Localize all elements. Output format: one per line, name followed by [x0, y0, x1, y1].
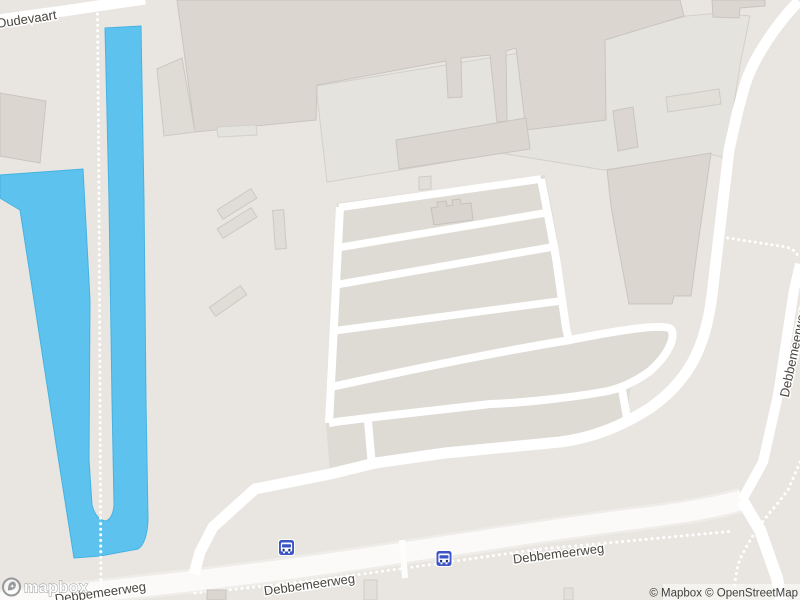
svg-text:© Mapbox © OpenStreetMap: © Mapbox © OpenStreetMap — [649, 588, 798, 600]
svg-text:mapbox: mapbox — [24, 580, 88, 597]
